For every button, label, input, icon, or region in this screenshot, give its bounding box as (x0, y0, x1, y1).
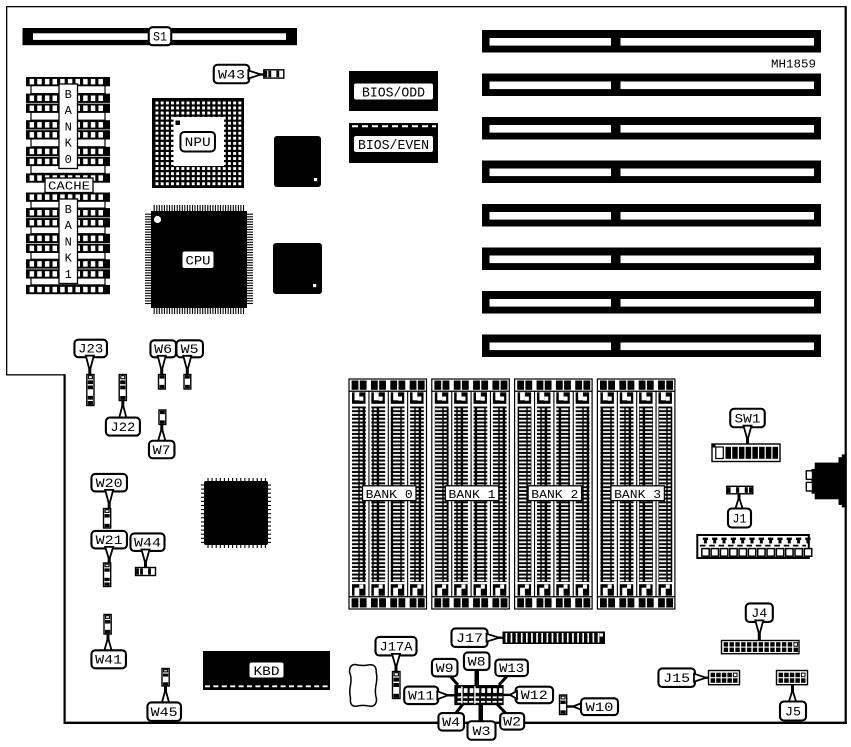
svg-text:BANK 3: BANK 3 (614, 488, 661, 502)
svg-text:BIOS/EVEN: BIOS/EVEN (358, 139, 429, 154)
svg-text:W10: W10 (586, 701, 614, 715)
svg-text:W41: W41 (95, 654, 122, 668)
svg-text:BANK 0: BANK 0 (366, 488, 413, 502)
svg-text:W2: W2 (503, 716, 521, 730)
svg-text:W12: W12 (521, 689, 548, 703)
svg-text:KBD: KBD (254, 665, 280, 679)
svg-text:CPU: CPU (186, 254, 211, 269)
svg-text:J1: J1 (733, 512, 747, 526)
svg-text:1: 1 (65, 268, 72, 282)
svg-text:J22: J22 (110, 421, 135, 435)
svg-text:A: A (65, 219, 73, 233)
svg-text:N: N (65, 120, 72, 134)
svg-text:BIOS/ODD: BIOS/ODD (362, 87, 425, 102)
svg-text:J4: J4 (751, 607, 767, 621)
svg-text:S1: S1 (153, 30, 167, 44)
svg-text:BANK 2: BANK 2 (531, 488, 578, 502)
svg-text:B: B (65, 203, 72, 217)
svg-text:MH1859: MH1859 (771, 59, 816, 72)
svg-text:W43: W43 (218, 68, 245, 82)
svg-text:W44: W44 (134, 536, 161, 550)
svg-text:J17: J17 (456, 632, 483, 646)
svg-text:J17A: J17A (380, 640, 414, 654)
svg-text:J23: J23 (78, 343, 103, 357)
svg-text:J5: J5 (785, 705, 801, 719)
svg-text:SW1: SW1 (735, 412, 761, 426)
svg-text:N: N (65, 235, 72, 249)
svg-text:W4: W4 (442, 716, 460, 730)
svg-text:W3: W3 (473, 725, 491, 739)
svg-text:BANK 1: BANK 1 (449, 488, 496, 502)
svg-text:K: K (65, 252, 73, 266)
svg-text:W9: W9 (436, 662, 454, 676)
svg-text:J15: J15 (663, 672, 690, 686)
svg-text:W11: W11 (408, 690, 434, 704)
svg-text:CACHE: CACHE (48, 180, 90, 194)
svg-text:W8: W8 (468, 655, 486, 669)
svg-text:W20: W20 (96, 477, 123, 491)
svg-text:0: 0 (65, 153, 72, 167)
svg-text:W45: W45 (151, 706, 178, 720)
svg-text:NPU: NPU (185, 136, 211, 150)
svg-text:W13: W13 (499, 662, 524, 676)
svg-text:B: B (65, 88, 72, 102)
svg-text:K: K (65, 137, 73, 151)
svg-text:W21: W21 (96, 534, 123, 548)
svg-text:W7: W7 (153, 444, 171, 458)
svg-text:A: A (65, 104, 73, 118)
